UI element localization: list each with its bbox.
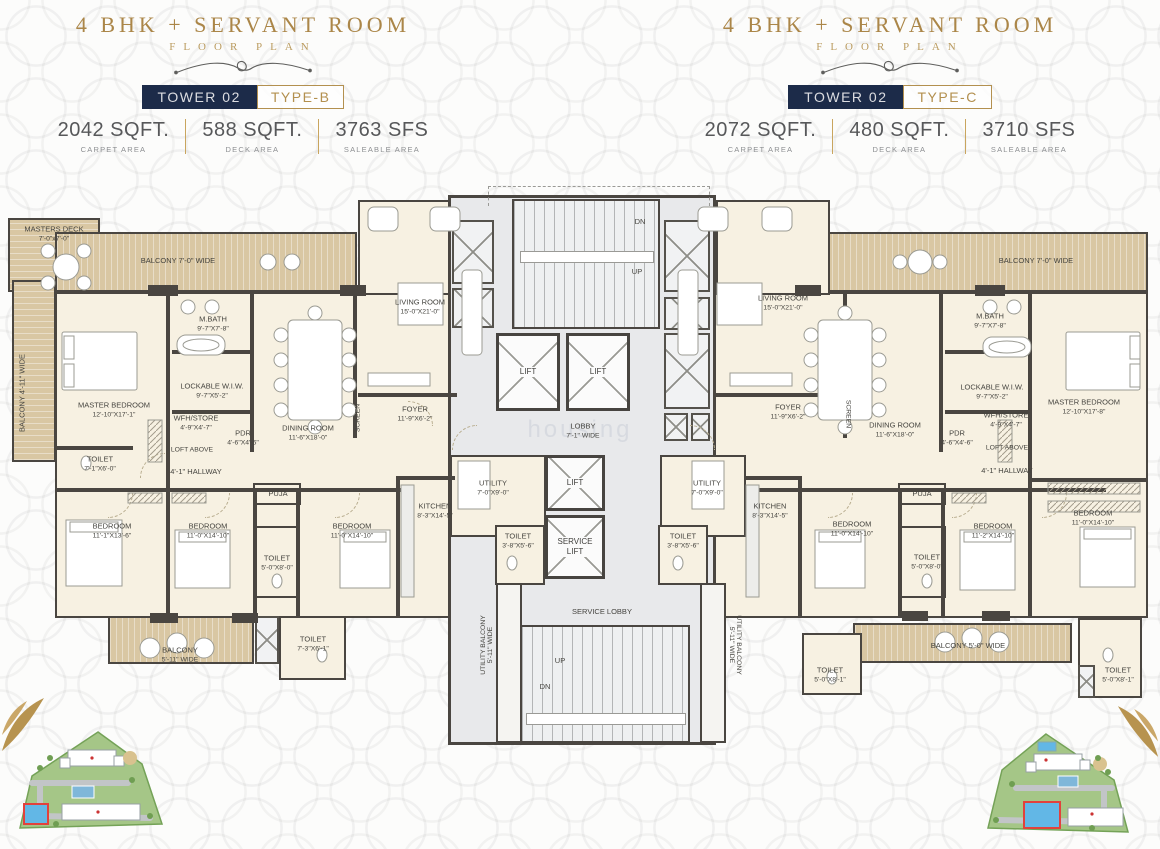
page-title: 4 BHK + SERVANT ROOM bbox=[54, 12, 432, 38]
utility-right-label: UTILITY7'-0"X9'-0" bbox=[691, 478, 723, 497]
room-label-balcony-side-b: BALCONY 4'-11" WIDE bbox=[18, 354, 27, 432]
room-label-kitchen-b: KITCHEN8'-3"X14'-5" bbox=[417, 501, 452, 520]
lobby-label: LOBBY7'-1" WIDE bbox=[566, 421, 599, 440]
page-title: 4 BHK + SERVANT ROOM bbox=[701, 12, 1079, 38]
room-label-balcony-top-c: BALCONY 7'-0" WIDE bbox=[999, 256, 1073, 266]
room-label-toilet-mid-c: TOILET5'-0"X8'-0" bbox=[911, 552, 943, 571]
room-label-balcony-top-b: BALCONY 7'-0" WIDE bbox=[141, 256, 215, 266]
room-label-balcony-bottom-b: BALCONY5'-11" WIDE bbox=[162, 645, 198, 664]
stats-row: 2042 SQFT. CARPET AREA 588 SQFT. DECK AR… bbox=[54, 119, 432, 154]
room-label-balcony-bottom-c: BALCONY 5'-0" WIDE bbox=[931, 641, 1005, 651]
room-label-loft-b: LOFT ABOVE bbox=[171, 445, 213, 454]
tower-badge: TOWER 02 bbox=[788, 85, 903, 109]
stats-row: 2072 SQFT. CARPET AREA 480 SQFT. DECK AR… bbox=[701, 119, 1079, 154]
room-label-bedroom4-b: BEDROOM11'-0"X14'-10" bbox=[331, 521, 373, 540]
room-label-puja-b: PUJA bbox=[268, 489, 287, 499]
room-label-toilet-b2-c: TOILET5'-0"X8'-1" bbox=[1102, 665, 1134, 684]
room-label-wfh-b: WFH/STORE4'-9"X4'-7" bbox=[174, 413, 219, 432]
room-label-bedroom3-c: BEDROOM11'-2"X14'-10" bbox=[972, 521, 1014, 540]
room-label-master-bedroom-c: MASTER BEDROOM12'-10"X17'-8" bbox=[1048, 397, 1120, 416]
room-label-mbath-b: M.BATH9'-7"X7'-8" bbox=[197, 314, 229, 333]
room-label-master-bedroom-b: MASTER BEDROOM12'-10"X17'-1" bbox=[78, 400, 150, 419]
header-type-c: 4 BHK + SERVANT ROOM FLOOR PLAN TOWER 02… bbox=[701, 12, 1079, 154]
stat-deck-area: 480 SQFT. DECK AREA bbox=[832, 119, 965, 154]
utility-balcony-right-label: UTILITY BALCONY5'-11" WIDE bbox=[728, 615, 742, 675]
stair-bottom-up-label: UP bbox=[555, 656, 565, 666]
room-label-bedroom3-b: BEDROOM11'-0"X14'-10" bbox=[187, 521, 229, 540]
room-label-masters-deck: MASTERS DECK7'-0"x7'-0" bbox=[24, 224, 83, 243]
page-subtitle: FLOOR PLAN bbox=[701, 41, 1079, 53]
room-label-screen-b: SCREEN bbox=[355, 404, 362, 432]
stat-carpet-area: 2072 SQFT. CARPET AREA bbox=[689, 119, 833, 154]
page-subtitle: FLOOR PLAN bbox=[54, 41, 432, 53]
type-badge: TYPE-C bbox=[903, 85, 991, 109]
room-label-living-c: LIVING ROOM15'-0"X21'-0" bbox=[758, 293, 808, 312]
tower-badge: TOWER 02 bbox=[142, 85, 257, 109]
room-label-toilet-mid-b: TOILET5'-0"X8'-0" bbox=[261, 553, 293, 572]
room-label-mbath-c: M.BATH9'-7"X7'-8" bbox=[974, 311, 1006, 330]
room-label-hallway-c: 4'-1" HALLWAY bbox=[981, 466, 1032, 476]
utility-toilet-right-label: TOILET3'-8"X5'-6" bbox=[667, 531, 699, 550]
room-label-dining-c: DINING ROOM11'-6"X18'-0" bbox=[869, 420, 921, 439]
room-label-pdr-c: PDR4'-6"X4'-6" bbox=[941, 428, 973, 447]
room-label-kitchen-c: KITCHEN8'-3"X14'-5" bbox=[752, 501, 787, 520]
room-label-foyer-b: FOYER11'-9"X6'-2" bbox=[398, 404, 433, 423]
room-label-bedroom2-b: BEDROOM11'-1"X13'-6" bbox=[93, 521, 132, 540]
room-label-dining-b: DINING ROOM11'-6"X18'-0" bbox=[282, 423, 334, 442]
badges-row: TOWER 02 TYPE-C bbox=[701, 85, 1079, 109]
floor-plan-brochure: 4 BHK + SERVANT ROOM FLOOR PLAN TOWER 02… bbox=[0, 0, 1160, 849]
room-label-loft-c: LOFT ABOVE bbox=[986, 443, 1028, 452]
stair-bottom-dn-label: DN bbox=[540, 682, 551, 692]
stat-saleable-area: 3710 SFS SALEABLE AREA bbox=[965, 119, 1091, 154]
room-label-wiw-c: LOCKABLE W.I.W.9'-7"X5'-2" bbox=[960, 382, 1023, 401]
stat-saleable-area: 3763 SFS SALEABLE AREA bbox=[318, 119, 444, 154]
flourish-icon bbox=[701, 57, 1079, 81]
room-label-toilet-bottom-b: TOILET7'-3"X6'-1" bbox=[297, 634, 329, 653]
room-label-toilet-master-b: TOILET7'-1"X6'-0" bbox=[84, 454, 116, 473]
room-label-living-b: LIVING ROOM15'-0"X21'-0" bbox=[395, 297, 445, 316]
room-label-bedroom4-c: BEDROOM11'-0"X14'-10" bbox=[1072, 508, 1114, 527]
flourish-icon bbox=[54, 57, 432, 81]
floor-plan: housing LIFT LIFT LIFT SER bbox=[0, 185, 1160, 760]
utility-balcony-left-label: UTILITY BALCONY5'-11" WIDE bbox=[480, 615, 494, 675]
room-label-hallway-b: 4'-1" HALLWAY bbox=[170, 467, 221, 477]
room-label-bedroom2-c: BEDROOM11'-0"X14'-10" bbox=[831, 519, 873, 538]
stair-up-label: UP bbox=[632, 267, 642, 277]
room-label-toilet-b1-c: TOILET5'-0"X8'-1" bbox=[814, 665, 846, 684]
room-label-pdr-b: PDR4'-6"X4'-6" bbox=[227, 428, 259, 447]
room-label-screen-c: SCREEN bbox=[845, 400, 852, 428]
stat-deck-area: 588 SQFT. DECK AREA bbox=[185, 119, 318, 154]
room-label-wfh-c: WFH/STORE4'-9"X4'-7" bbox=[984, 410, 1029, 429]
utility-left-label: UTILITY7'-0"X9'-0" bbox=[477, 478, 509, 497]
type-badge: TYPE-B bbox=[257, 85, 345, 109]
stair-dn-label: DN bbox=[635, 217, 646, 227]
badges-row: TOWER 02 TYPE-B bbox=[54, 85, 432, 109]
header-type-b: 4 BHK + SERVANT ROOM FLOOR PLAN TOWER 02… bbox=[54, 12, 432, 154]
room-label-puja-c: PUJA bbox=[912, 489, 931, 499]
utility-toilet-left-label: TOILET3'-8"X5'-6" bbox=[502, 531, 534, 550]
room-label-wiw-b: LOCKABLE W.I.W.9'-7"X5'-2" bbox=[180, 381, 243, 400]
stat-carpet-area: 2042 SQFT. CARPET AREA bbox=[42, 119, 186, 154]
room-label-foyer-c: FOYER11'-9"X6'-2" bbox=[771, 402, 806, 421]
service-lobby-label: SERVICE LOBBY bbox=[572, 607, 632, 617]
